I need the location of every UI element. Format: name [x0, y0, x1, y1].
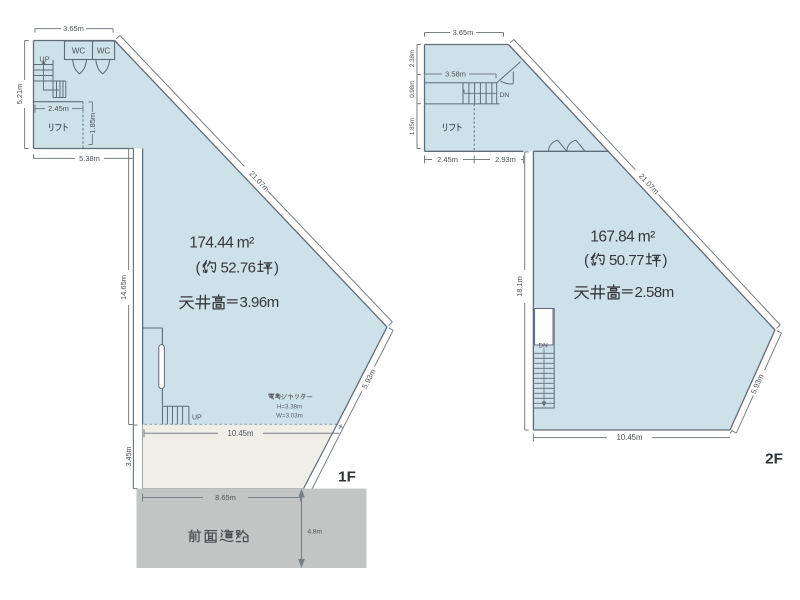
svg-text:10.45m: 10.45m — [227, 429, 253, 438]
svg-text:): ) — [663, 252, 668, 269]
svg-text:WC: WC — [72, 47, 86, 56]
svg-text:3.45m: 3.45m — [124, 447, 133, 467]
svg-text:UP: UP — [192, 415, 202, 422]
svg-text:5.21m: 5.21m — [15, 84, 24, 105]
svg-text:2.58m: 2.58m — [635, 284, 674, 301]
svg-text:0.98m: 0.98m — [409, 81, 416, 98]
svg-text:8.65m: 8.65m — [215, 493, 236, 502]
svg-text:WC: WC — [97, 47, 111, 56]
svg-text:50.77: 50.77 — [609, 252, 644, 269]
svg-text:3.58m: 3.58m — [445, 70, 466, 79]
svg-text:18.1m: 18.1m — [515, 276, 524, 297]
svg-text:DN: DN — [539, 343, 549, 350]
svg-text:): ) — [274, 260, 279, 277]
svg-text:3.96m: 3.96m — [240, 294, 279, 311]
svg-text:3.65m: 3.65m — [63, 24, 84, 33]
svg-text:4.8m: 4.8m — [308, 529, 322, 536]
svg-text:2F: 2F — [765, 451, 783, 468]
svg-text:(: ( — [196, 260, 201, 277]
svg-text:DN: DN — [500, 92, 510, 99]
svg-text:3.65m: 3.65m — [453, 28, 474, 37]
svg-text:167.84 m²: 167.84 m² — [590, 229, 655, 246]
svg-text:14.65m: 14.65m — [119, 275, 128, 300]
svg-text:2.93m: 2.93m — [495, 155, 516, 164]
svg-text:UP: UP — [39, 55, 49, 64]
svg-text:52.76: 52.76 — [220, 260, 255, 277]
svg-text:W=3.03m: W=3.03m — [276, 413, 303, 420]
svg-text:174.44 m²: 174.44 m² — [189, 235, 254, 252]
svg-text:5.38m: 5.38m — [79, 154, 100, 163]
svg-text:2.38m: 2.38m — [409, 50, 416, 67]
svg-text:1.85m: 1.85m — [88, 113, 97, 134]
svg-text:1F: 1F — [338, 469, 356, 486]
svg-text:2.45m: 2.45m — [48, 104, 69, 113]
svg-text:H=3.38m: H=3.38m — [277, 404, 302, 411]
svg-text:(: ( — [584, 252, 589, 269]
svg-text:2.45m: 2.45m — [437, 155, 458, 164]
svg-text:10.45m: 10.45m — [616, 433, 642, 442]
svg-text:1.85m: 1.85m — [409, 118, 416, 135]
